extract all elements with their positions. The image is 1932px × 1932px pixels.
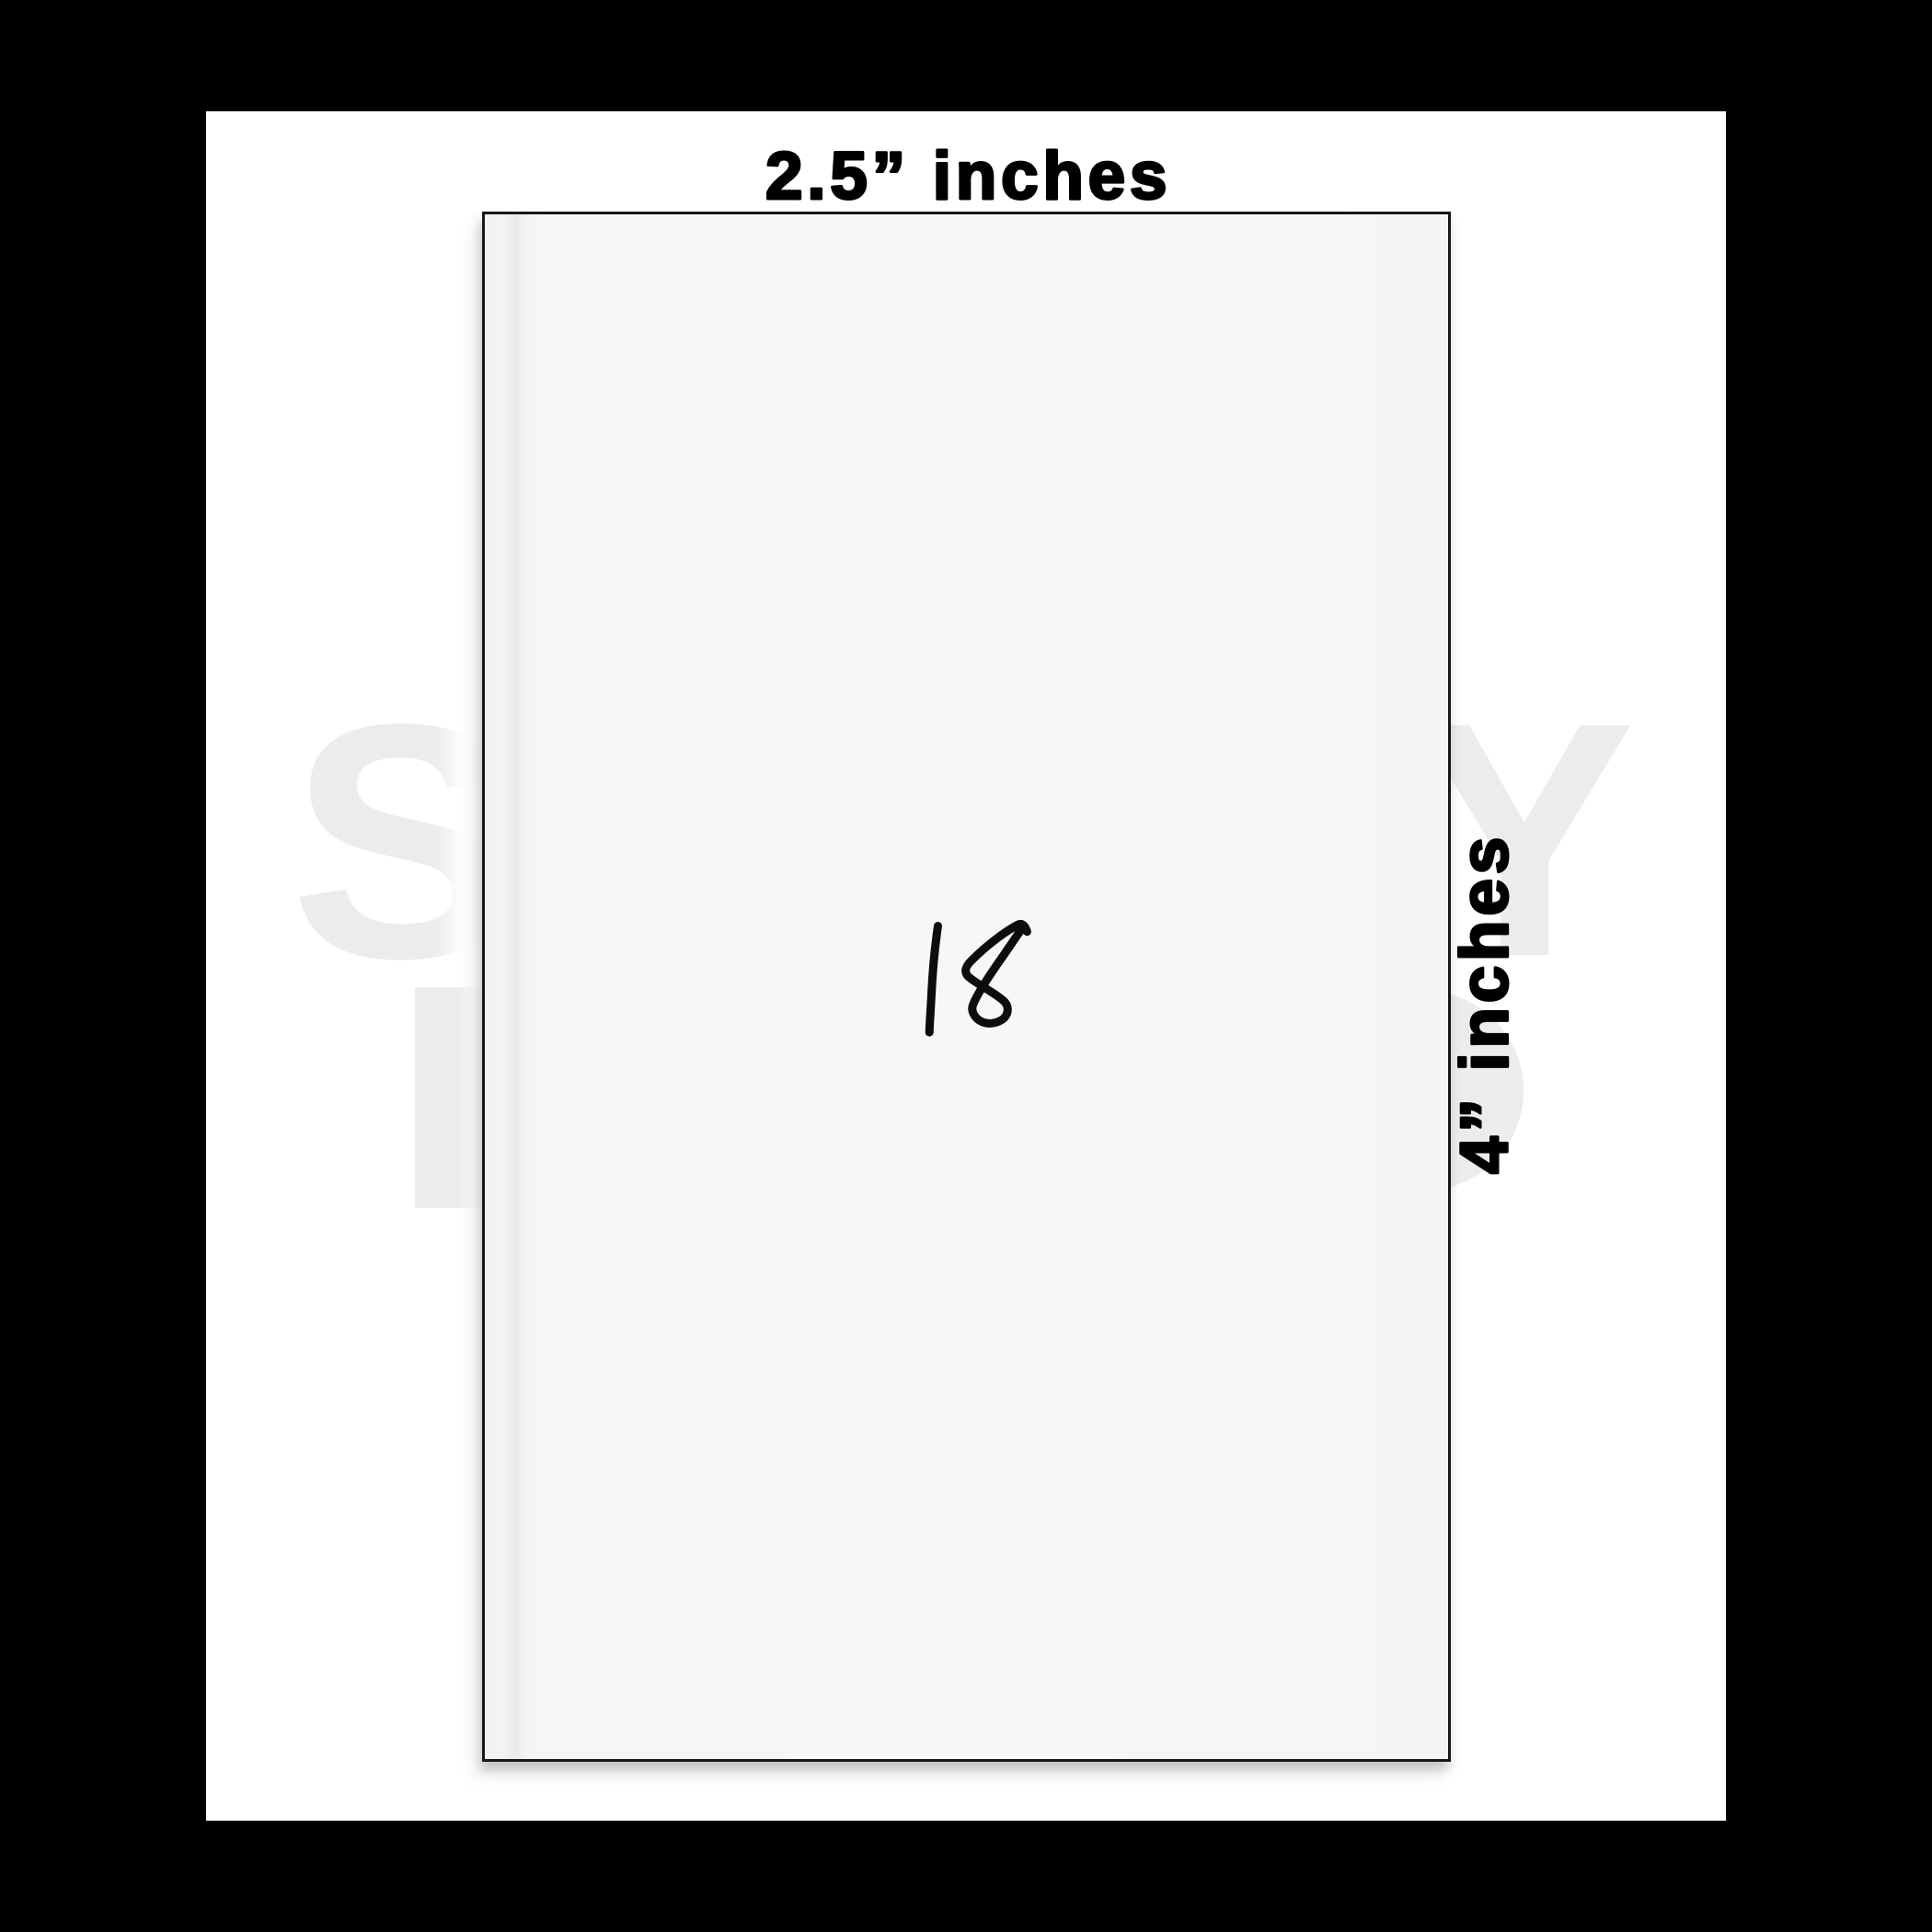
svg-text:2.5” inches: 2.5” inches <box>765 139 1171 213</box>
svg-text:4” inches: 4” inches <box>1448 833 1523 1174</box>
